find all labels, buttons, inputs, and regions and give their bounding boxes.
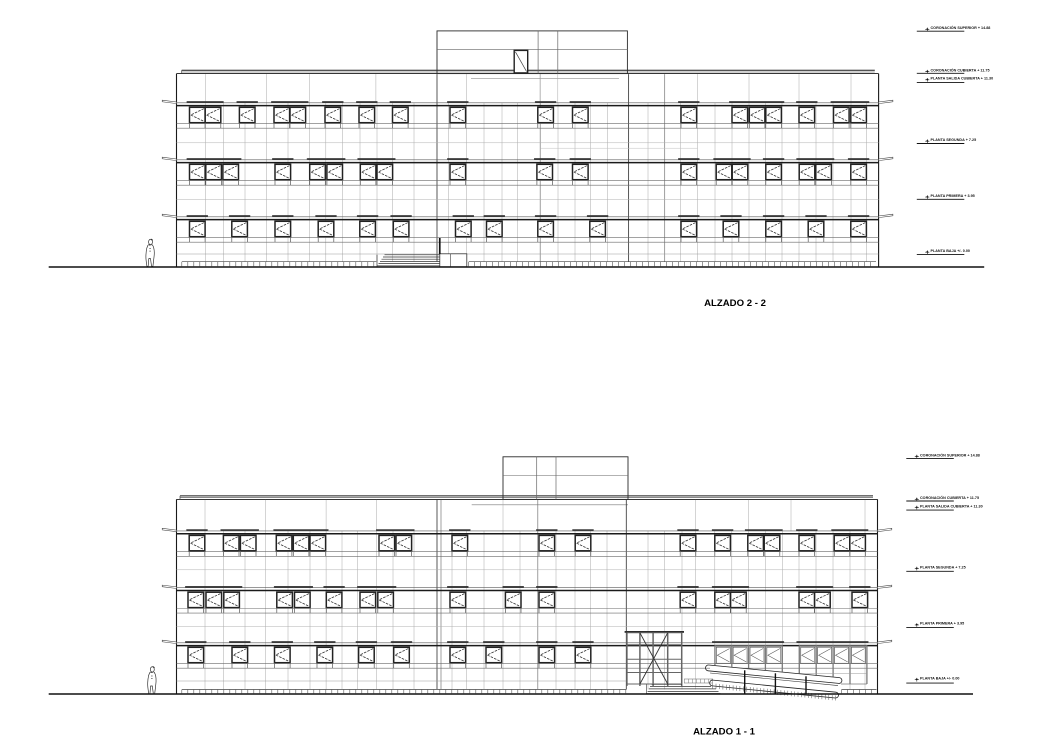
svg-text:ALZADO 2 - 2: ALZADO 2 - 2 <box>704 298 766 309</box>
svg-text:ALZADO 1 - 1: ALZADO 1 - 1 <box>693 726 755 737</box>
svg-text:PLANTA SALIDA CUBIERTA + 11.30: PLANTA SALIDA CUBIERTA + 11.30 <box>920 504 983 508</box>
svg-text:PLANTA BAJA +/- 0.00: PLANTA BAJA +/- 0.00 <box>920 677 960 681</box>
svg-text:PLANTA BAJA +/- 0.00: PLANTA BAJA +/- 0.00 <box>931 249 971 253</box>
svg-text:PLANTA SEGUNDA + 7.25: PLANTA SEGUNDA + 7.25 <box>931 138 977 142</box>
svg-text:PLANTA PRIMERA + 3.95: PLANTA PRIMERA + 3.95 <box>931 194 975 198</box>
svg-text:PLANTA PRIMERA + 3.95: PLANTA PRIMERA + 3.95 <box>920 622 964 626</box>
svg-text:CORONACIÓN CUBIERTA + 11.75: CORONACIÓN CUBIERTA + 11.75 <box>931 68 990 73</box>
svg-text:PLANTA SEGUNDA + 7.25: PLANTA SEGUNDA + 7.25 <box>920 565 966 569</box>
svg-text:CORONACIÓN CUBIERTA + 11.75: CORONACIÓN CUBIERTA + 11.75 <box>920 495 979 500</box>
svg-text:PLANTA SALIDA CUBIERTA + 11.30: PLANTA SALIDA CUBIERTA + 11.30 <box>931 77 994 81</box>
svg-text:CORONACIÓN SUPERIOR + 14.88: CORONACIÓN SUPERIOR + 14.88 <box>931 25 991 30</box>
svg-text:CORONACIÓN SUPERIOR + 14.88: CORONACIÓN SUPERIOR + 14.88 <box>920 452 980 457</box>
